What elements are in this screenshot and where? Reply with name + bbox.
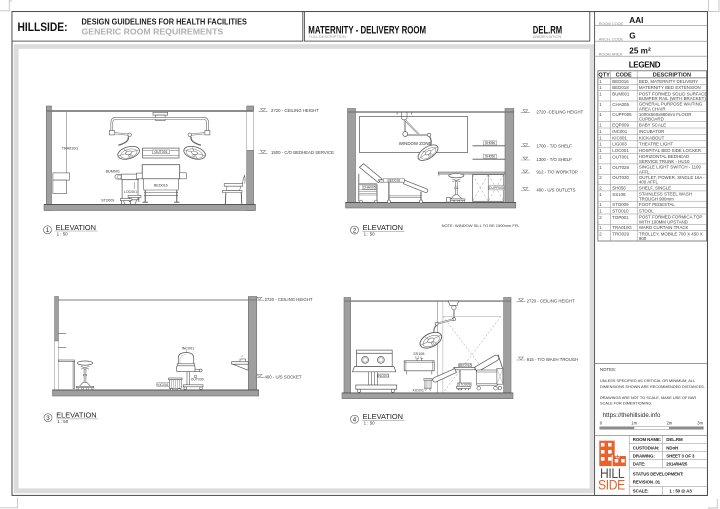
svg-text:SH056: SH056 [485,141,495,145]
svg-text:LOC001: LOC001 [124,190,137,194]
svg-text:AAI: AAI [629,16,643,25]
svg-text:OUT001: OUT001 [154,150,167,154]
svg-text:HOSPITAL BED SIDE LOCKER: HOSPITAL BED SIDE LOCKER [639,148,701,153]
svg-text:LEGEND: LEGEND [629,61,661,70]
svg-text:2720 -CEILING HEIGHT: 2720 -CEILING HEIGHT [536,109,583,114]
svg-text:BUM001: BUM001 [612,92,630,97]
svg-text:DEL.RM: DEL.RM [666,437,683,442]
svg-text:KICKABOUT: KICKABOUT [639,135,665,140]
svg-text:SHELF, SINGLE: SHELF, SINGLE [639,185,671,190]
svg-text:BED016: BED016 [154,183,168,187]
svg-text:915 - T/O WASH TROUGH: 915 - T/O WASH TROUGH [527,357,579,362]
svg-text:400 - U/S OUTLETS: 400 - U/S OUTLETS [536,187,575,192]
svg-text:SCALE:: SCALE: [633,489,649,494]
svg-text:INC001: INC001 [182,346,195,350]
svg-text:STATUS DEVELOPMENT:: STATUS DEVELOPMENT: [633,471,684,476]
svg-text:WITH 100MM UPSTAND: WITH 100MM UPSTAND [639,219,688,224]
svg-text:S T S: S T S [415,356,422,360]
svg-text:G: G [629,32,635,41]
svg-text:BED018: BED018 [612,85,629,90]
svg-text:TRA010G: TRA010G [612,225,632,230]
svg-text:KIC001: KIC001 [612,135,627,140]
svg-text:TOP001: TOP001 [612,215,629,220]
svg-text:2014/04/25: 2014/04/25 [666,462,688,467]
svg-text:BUM001: BUM001 [106,170,120,174]
svg-text:NDoH: NDoH [666,445,678,450]
svg-text:FULL DESCRIPTION: FULL DESCRIPTION [309,34,346,39]
svg-text:STO009: STO009 [101,198,114,202]
svg-text:2720 - CEILING HEIGHT: 2720 - CEILING HEIGHT [265,297,313,302]
svg-text:SH056: SH056 [485,155,495,159]
svg-text:BED, MATERNITY DELIVERY: BED, MATERNITY DELIVERY [639,79,698,84]
svg-text:REVISION_01: REVISION_01 [633,479,661,484]
svg-text:MATERNITY BED EXTENSION: MATERNITY BED EXTENSION [639,85,701,90]
svg-text:AFFL: AFFL [639,169,650,174]
svg-text:1700 - T/O SHELF: 1700 - T/O SHELF [536,143,572,148]
svg-text:2720 - CEILING HEIGHT: 2720 - CEILING HEIGHT [527,298,575,303]
svg-text:CUPF005: CUPF005 [612,112,632,117]
svg-text:900: 900 [639,236,647,241]
svg-text:ABBREVIATION: ABBREVIATION [533,34,562,39]
svg-text:DRAWINGS ARE NOT TO SCALE, MAK: DRAWINGS ARE NOT TO SCALE, MAKE USE OF B… [600,396,696,400]
svg-text:2: 2 [353,227,357,234]
svg-text:1 : 50: 1 : 50 [57,419,69,424]
svg-text:SH056: SH056 [612,185,626,190]
svg-text:WINDOW ZONE: WINDOW ZONE [399,141,432,146]
svg-text:STO009: STO009 [612,202,629,207]
svg-text:DATE:: DATE: [633,462,646,467]
svg-text:ARCH. CODE: ARCH. CODE [599,36,624,41]
svg-text:INC001: INC001 [612,129,627,134]
svg-text:THEATRE LIGHT: THEATRE LIGHT [639,142,674,147]
svg-text:FOOT PEDESTAL: FOOT PEDESTAL [639,202,676,207]
svg-text:SIDE: SIDE [598,477,626,493]
svg-text:OUT028: OUT028 [612,165,629,170]
svg-text:STO010: STO010 [612,209,629,214]
svg-text:2720 - CEILING HEIGHT: 2720 - CEILING HEIGHT [271,108,319,113]
svg-text:https://thehillside.info: https://thehillside.info [603,412,661,419]
svg-text:2m: 2m [667,421,673,426]
svg-text:LIG003: LIG003 [612,142,627,147]
svg-text:TRO029: TRO029 [612,232,629,237]
svg-text:1: 1 [46,227,50,234]
svg-text:DRAWING:: DRAWING: [633,453,656,458]
svg-text:1 : 50: 1 : 50 [364,421,376,426]
svg-text:DIMENSIONS SHOWN ARE RECOMMEND: DIMENSIONS SHOWN ARE RECOMMENDED DISTANC… [600,385,705,389]
svg-text:1 : 50 @ A3: 1 : 50 @ A3 [669,489,692,494]
svg-text:CODE: CODE [616,72,632,78]
svg-text:1m: 1m [631,421,637,426]
svg-text:OUT030: OUT030 [612,175,629,180]
svg-text:OUT030: OUT030 [191,378,204,382]
svg-text:400 - U/S SOCKET: 400 - U/S SOCKET [265,374,302,379]
svg-text:BABY SCALE: BABY SCALE [639,123,666,128]
svg-text:ROOM NAME:: ROOM NAME: [633,437,662,442]
svg-text:25 m²: 25 m² [629,46,651,55]
svg-text:UNLESS SPECIFIED AS CRITICAL O: UNLESS SPECIFIED AS CRITICAL OR MINIMUM,… [600,379,696,383]
svg-text:DESIGN GUIDELINES FOR HEALTH F: DESIGN GUIDELINES FOR HEALTH FACILITIES [82,17,247,27]
svg-text:CUPBOARD: CUPBOARD [639,117,664,122]
svg-text:BED016: BED016 [387,179,400,183]
svg-text:SCALE FOR DIMENTIONING.: SCALE FOR DIMENTIONING. [600,401,652,405]
svg-text:DESCRIPTION: DESCRIPTION [653,72,691,78]
svg-text:4: 4 [353,417,357,424]
svg-text:NOTE: WINDOW SILL TO BE 1500mm: NOTE: WINDOW SILL TO BE 1500mm FFL [442,223,521,228]
svg-text:BUMPER RAIL (WITH BRACKET): BUMPER RAIL (WITH BRACKET) [639,96,706,101]
svg-text:SS108: SS108 [612,192,626,197]
svg-text:400 AFFL: 400 AFFL [639,180,659,185]
svg-text:CHA005: CHA005 [612,102,629,107]
svg-text:912 - T/O WORKTOP: 912 - T/O WORKTOP [536,170,578,175]
svg-text:TROUGH 900mm: TROUGH 900mm [639,196,674,201]
svg-text:HILLSIDE:: HILLSIDE: [18,21,68,34]
svg-text:1 : 50: 1 : 50 [364,232,376,237]
svg-text:1500 - C/O BEDHEAD SERVICE: 1500 - C/O BEDHEAD SERVICE [271,150,334,155]
svg-text:OUT001: OUT001 [612,155,629,160]
svg-text:WARD CURTAIN TRACK: WARD CURTAIN TRACK [639,225,689,230]
svg-text:CUPF005: CUPF005 [489,186,504,190]
svg-text:LOC001: LOC001 [612,148,629,153]
svg-text:GENERIC ROOM REQUIREMENTS: GENERIC ROOM REQUIREMENTS [82,26,224,36]
svg-text:SERVICE TRUNK - HU10: SERVICE TRUNK - HU10 [639,159,690,164]
svg-text:SHEET 3 OF 3: SHEET 3 OF 3 [666,453,695,458]
svg-text:TRA010G: TRA010G [62,146,79,150]
svg-text:NOTES:: NOTES: [600,367,616,372]
svg-text:KIC001: KIC001 [413,388,424,392]
svg-text:AREA CHAIR: AREA CHAIR [639,106,666,111]
svg-text:BED016: BED016 [612,79,629,84]
svg-text:STOOL: STOOL [639,209,654,214]
svg-text:TROLLEY, MOBILE 700 X 450 X: TROLLEY, MOBILE 700 X 450 X [639,231,703,236]
svg-text:CUSTODIAN:: CUSTODIAN: [633,445,660,450]
svg-text:INCUBATOR: INCUBATOR [639,129,664,134]
svg-text:ROOM CODE: ROOM CODE [599,21,624,26]
svg-text:1 : 50: 1 : 50 [57,231,69,236]
svg-text:INC001: INC001 [378,374,390,378]
svg-text:EQP009: EQP009 [612,123,629,128]
svg-text:QTY: QTY [598,72,610,78]
svg-text:BED016: BED016 [459,364,472,368]
svg-text:1300 - T/O SHELF: 1300 - T/O SHELF [536,157,572,162]
svg-text:KIC001: KIC001 [157,383,168,387]
svg-text:ROOM AREA: ROOM AREA [599,51,623,56]
svg-text:CHA005: CHA005 [363,186,376,190]
svg-text:3: 3 [46,415,50,422]
svg-text:3m: 3m [697,421,703,426]
